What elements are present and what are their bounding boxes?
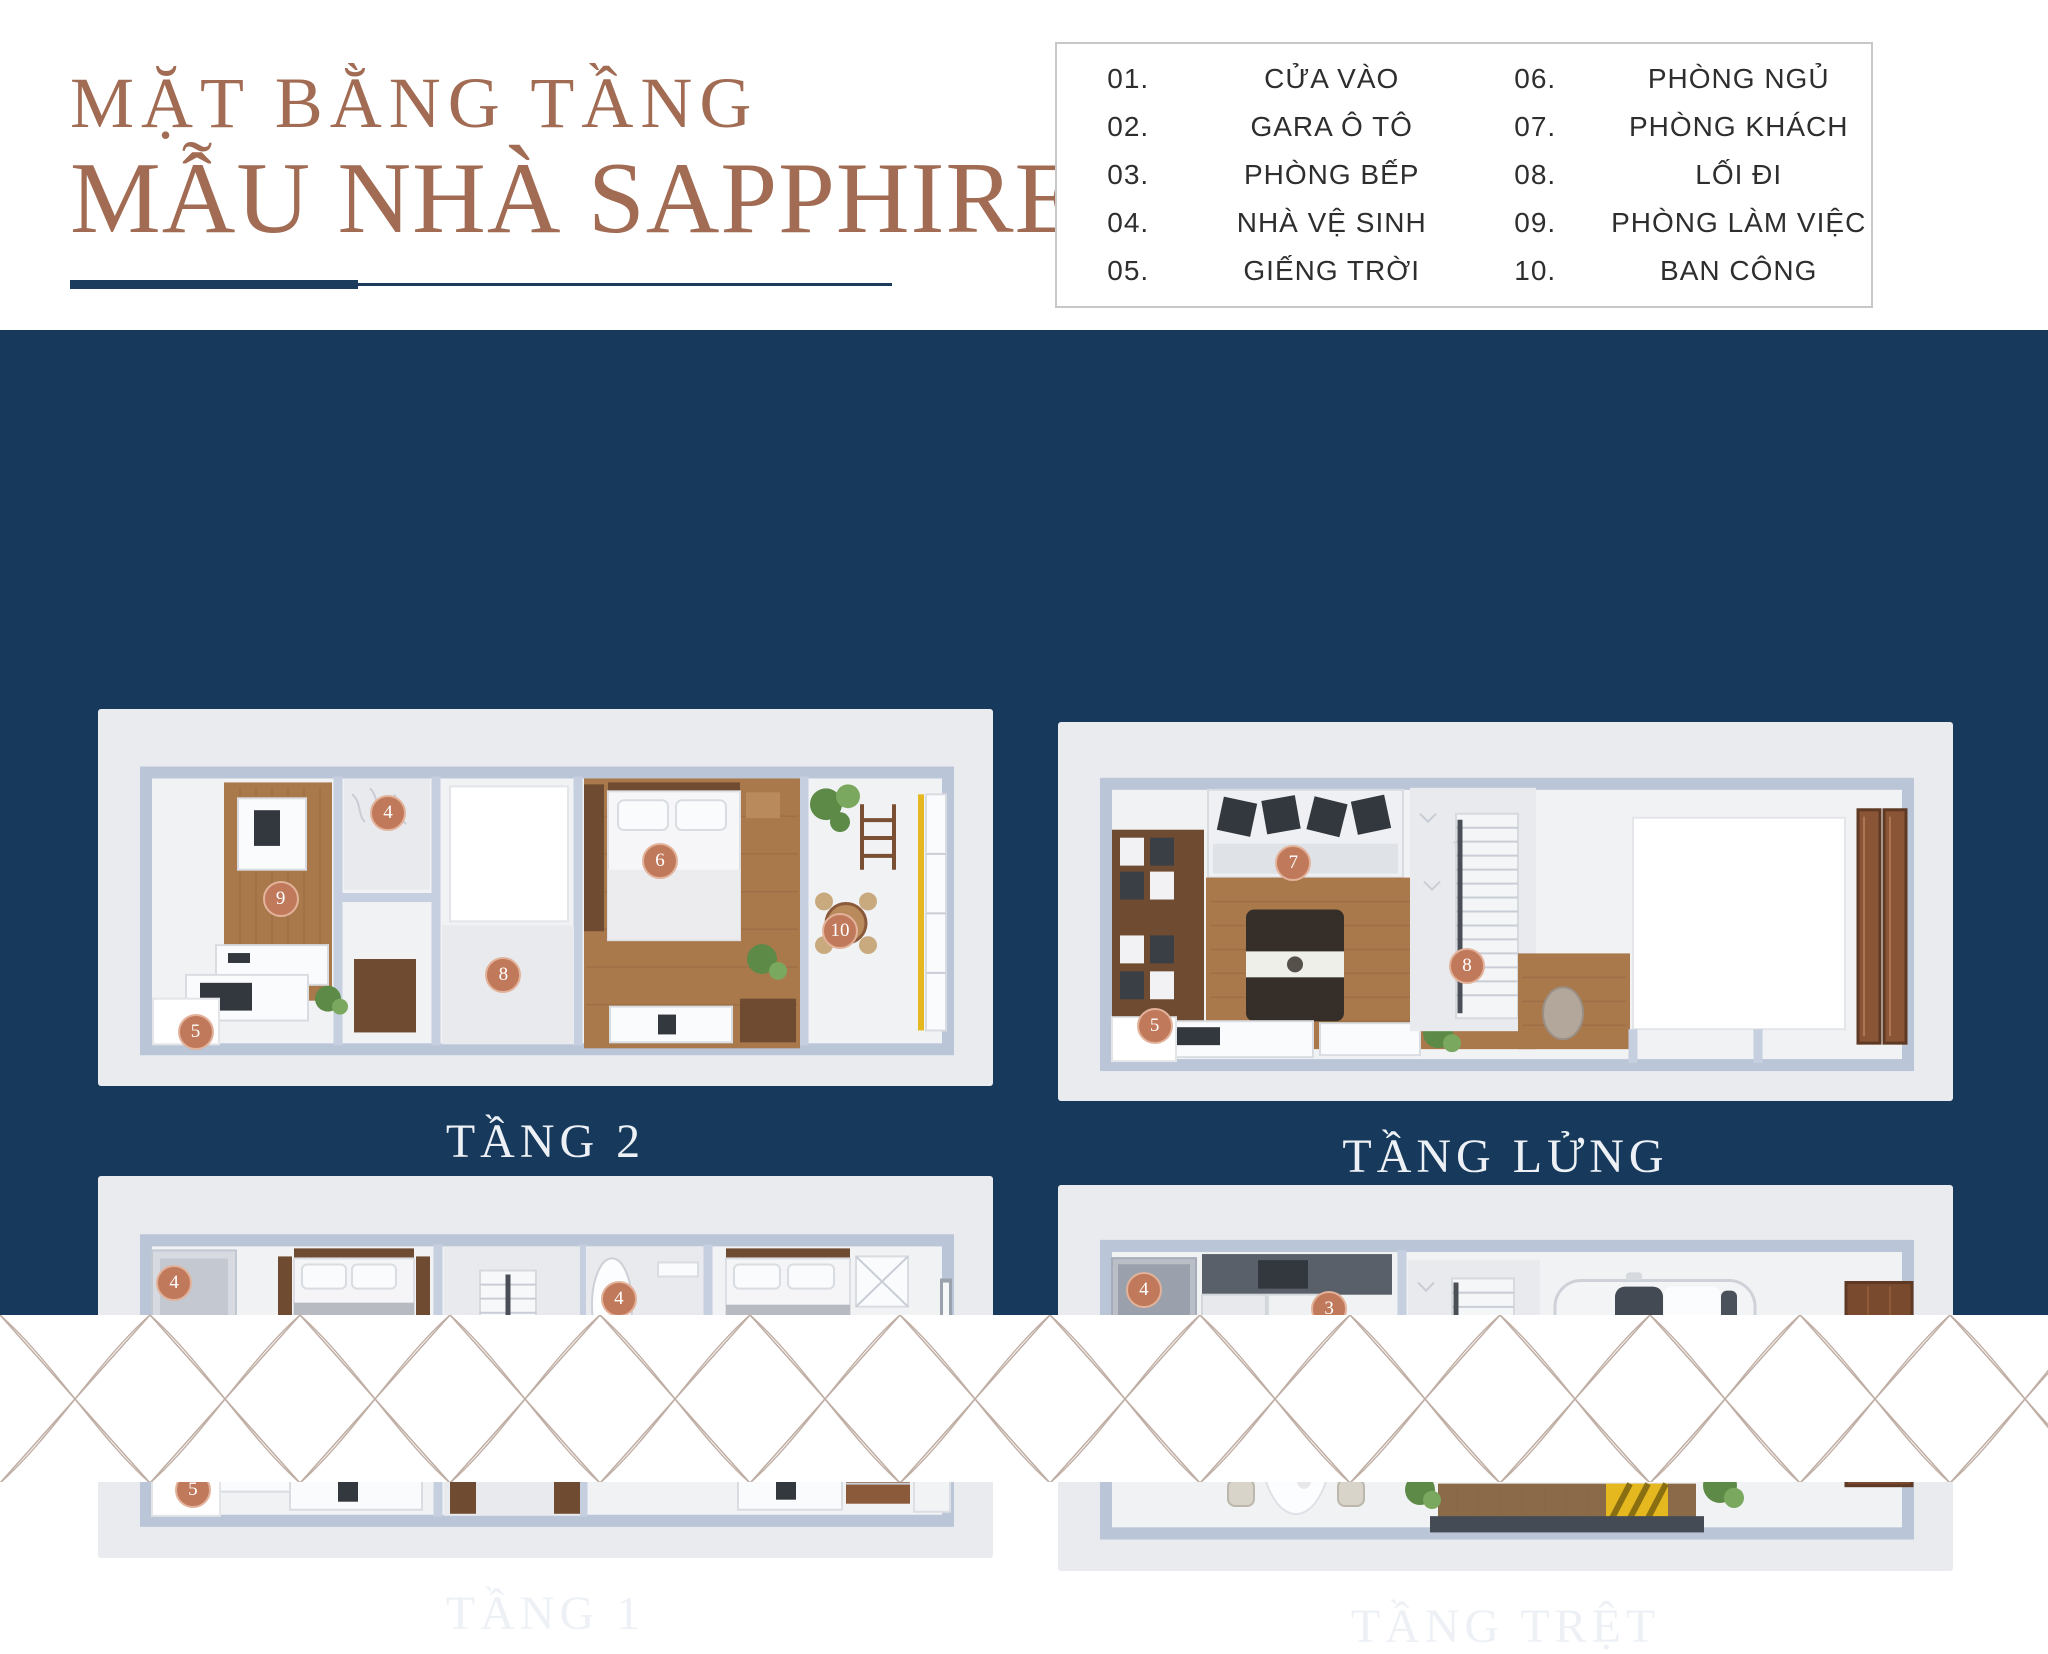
legend-item: 03. PHÒNG BẾP — [1057, 152, 1464, 198]
legend-item-label: PHÒNG NGỦ — [1606, 63, 1871, 95]
room-badge-4: 4 — [156, 1265, 192, 1301]
room-badge-5: 5 — [1137, 1008, 1173, 1044]
legend-item-number: 09. — [1464, 207, 1606, 239]
room-badge-8: 8 — [485, 957, 521, 993]
floor-plan-card-tang-2: 4968510 — [98, 709, 993, 1086]
room-badge-7: 7 — [1275, 845, 1311, 881]
title-block: MẶT BẰNG TẦNG MẪU NHÀ SAPPHIRE — [70, 62, 970, 289]
room-badge-10: 10 — [822, 913, 858, 949]
legend-item-number: 07. — [1464, 111, 1606, 143]
legend-box: 01. CỬA VÀO 02. GARA Ô TÔ 03. PHÒNG BẾP … — [1055, 42, 1873, 308]
legend-item-number: 04. — [1057, 207, 1199, 239]
lattice-pattern — [0, 1315, 2048, 1482]
floor-label-tang-lung: TẦNG LỬNG — [1058, 1129, 1953, 1184]
legend-item: 09. PHÒNG LÀM VIỆC — [1464, 200, 1871, 246]
legend-item-number: 10. — [1464, 255, 1606, 287]
legend-item: 08. LỐI ĐI — [1464, 152, 1871, 198]
room-badge-9: 9 — [263, 881, 299, 917]
floor-plans-section: 4968510 TẦNG 2 — [0, 330, 2048, 1315]
legend-item-number: 06. — [1464, 63, 1606, 95]
lattice-pattern-band — [0, 1315, 2048, 1482]
legend-item: 02. GARA Ô TÔ — [1057, 104, 1464, 150]
legend-item-label: PHÒNG KHÁCH — [1606, 111, 1871, 143]
room-badge-5: 5 — [178, 1014, 214, 1050]
legend-column-right: 06. PHÒNG NGỦ 07. PHÒNG KHÁCH 08. LỐI ĐI… — [1464, 56, 1871, 294]
title-underline — [70, 280, 892, 289]
legend-item-label: NHÀ VỆ SINH — [1199, 207, 1464, 239]
floor-label-tang-tret: TẦNG TRỆT — [1058, 1599, 1953, 1654]
floor-label-tang-2: TẦNG 2 — [98, 1114, 993, 1169]
floor-plan-card-tang-lung: 785 — [1058, 722, 1953, 1101]
room-badge-4: 4 — [601, 1281, 637, 1317]
legend-item: 04. NHÀ VỆ SINH — [1057, 200, 1464, 246]
page-title-line2: MẪU NHÀ SAPPHIRE — [70, 144, 970, 254]
legend-item: 10. BAN CÔNG — [1464, 248, 1871, 294]
room-badge-6: 6 — [642, 843, 678, 879]
legend-item-label: PHÒNG LÀM VIỆC — [1606, 207, 1871, 239]
room-badge-8: 8 — [1449, 948, 1485, 984]
legend-item-label: CỬA VÀO — [1199, 63, 1464, 95]
legend-item-label: GARA Ô TÔ — [1199, 111, 1464, 143]
page-title-line1: MẶT BẰNG TẦNG — [70, 62, 970, 144]
floor-label-tang-1: TẦNG 1 — [98, 1586, 993, 1641]
legend-item-label: LỐI ĐI — [1606, 159, 1871, 191]
header: MẶT BẰNG TẦNG MẪU NHÀ SAPPHIRE 01. CỬA V… — [0, 0, 2048, 330]
legend-item-number: 02. — [1057, 111, 1199, 143]
legend-item: 07. PHÒNG KHÁCH — [1464, 104, 1871, 150]
badge-layer-tang-2: 4968510 — [98, 709, 993, 1086]
legend-item-label: PHÒNG BẾP — [1199, 159, 1464, 191]
legend-item-number: 01. — [1057, 63, 1199, 95]
legend-item: 01. CỬA VÀO — [1057, 56, 1464, 102]
legend-item-number: 08. — [1464, 159, 1606, 191]
title-underline-thick — [70, 280, 358, 289]
floor-plan-figure-tang-2: 4968510 TẦNG 2 — [98, 709, 993, 1169]
legend-item: 05. GIẾNG TRỜI — [1057, 248, 1464, 294]
legend-item-label: BAN CÔNG — [1606, 255, 1871, 287]
legend-column-left: 01. CỬA VÀO 02. GARA Ô TÔ 03. PHÒNG BẾP … — [1057, 56, 1464, 294]
legend-item-number: 03. — [1057, 159, 1199, 191]
room-badge-4: 4 — [1126, 1272, 1162, 1308]
room-badge-4: 4 — [370, 795, 406, 831]
legend-item: 06. PHÒNG NGỦ — [1464, 56, 1871, 102]
legend-item-number: 05. — [1057, 255, 1199, 287]
legend-item-label: GIẾNG TRỜI — [1199, 255, 1464, 287]
badge-layer-tang-lung: 785 — [1058, 722, 1953, 1101]
floor-plan-figure-tang-lung: 785 TẦNG LỬNG — [1058, 722, 1953, 1184]
